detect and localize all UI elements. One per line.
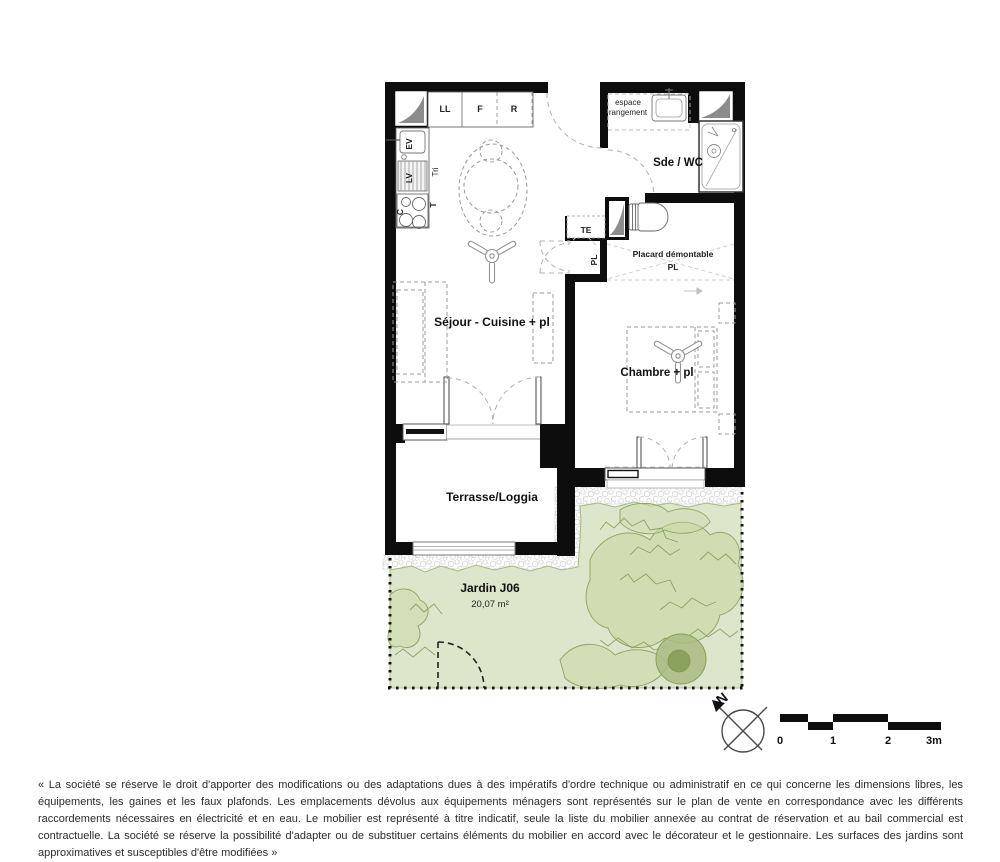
label-jardin-area: 20,07 m²	[471, 599, 509, 610]
label-terrasse: Terrasse/Loggia	[446, 490, 538, 504]
label-chambre: Chambre + pl	[620, 367, 693, 379]
column-top-right	[698, 90, 734, 122]
label-tri: Tri	[431, 167, 440, 176]
label-jardin: Jardin J06	[460, 581, 520, 595]
sde-door-arc	[608, 150, 654, 196]
legal-disclaimer: « La société se réserve le droit d'appor…	[38, 777, 963, 862]
toilet	[629, 203, 668, 231]
label-rangement-2: rangement	[609, 108, 648, 117]
garden-tree	[656, 634, 706, 684]
label-ll: LL	[440, 104, 451, 114]
sofa	[393, 282, 447, 382]
compass: N	[712, 689, 767, 752]
scale-2: 2	[885, 735, 891, 747]
label-placard-1: Placard démontable	[633, 249, 714, 259]
dining-table	[464, 159, 518, 213]
wc-door-leaf	[608, 200, 626, 238]
label-pl: PL	[589, 255, 599, 266]
label-placard-2: PL	[668, 262, 679, 272]
scale-3m: 3m	[926, 735, 942, 747]
chambre-sill	[607, 480, 704, 488]
bay-doors-sejour	[444, 377, 541, 424]
pl-door-arcs	[540, 241, 570, 273]
label-f: F	[477, 104, 483, 114]
label-t: T	[428, 202, 438, 208]
direction-arrow	[684, 288, 702, 294]
french-doors-chambre	[605, 437, 707, 468]
label-c: C	[395, 209, 405, 215]
column-top-left	[394, 90, 428, 127]
label-rangement-1: espace	[615, 98, 641, 107]
label-ev: EV	[404, 138, 414, 150]
label-sejour: Séjour - Cuisine + pl	[434, 315, 550, 329]
label-te: TE	[581, 225, 592, 235]
terrasse-window	[413, 542, 515, 555]
scale-0: 0	[777, 735, 783, 747]
scale-bar: 0 1 2 3m	[777, 714, 942, 747]
label-sde-wc: Sde / WC	[653, 157, 703, 169]
floor-plan: Séjour - Cuisine + pl Chambre + pl Sde /…	[0, 0, 1000, 857]
scale-1: 1	[830, 735, 836, 747]
label-r: R	[511, 104, 518, 114]
label-lv: LV	[404, 173, 414, 184]
shower	[699, 121, 743, 192]
entry-door-arc	[547, 93, 602, 148]
ceiling-fan-sejour	[467, 240, 516, 283]
